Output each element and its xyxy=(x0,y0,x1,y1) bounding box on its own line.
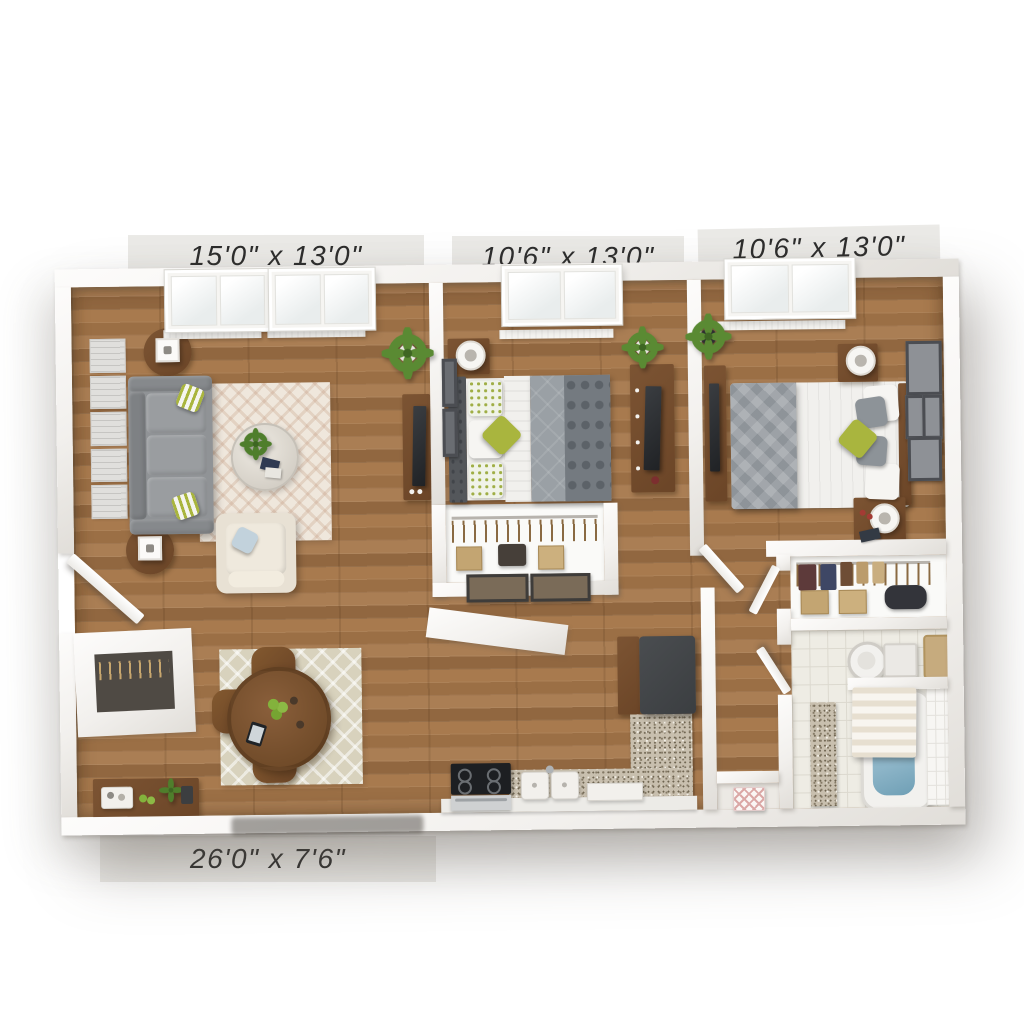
bedroom-one-wall-frame xyxy=(442,409,458,457)
hall-closet-wall-top xyxy=(717,771,779,784)
floor-plan-page: 15'0" x 13'0" 10'6" x 13'0" 10'6" x 13'0… xyxy=(0,0,1024,1024)
hanging-shirt-tan xyxy=(856,562,868,584)
outer-wall-left-upper xyxy=(55,287,74,553)
table-coaster xyxy=(296,721,304,729)
kitchen-dining-dimension-text: 26'0" x 7'6" xyxy=(190,843,346,875)
lamp-inner xyxy=(146,545,153,552)
range-cooktop xyxy=(451,763,511,795)
apartment-floor-plan xyxy=(36,244,983,845)
hall-framed-art-1 xyxy=(466,574,528,603)
floral-pillow xyxy=(469,462,503,498)
lamp-inner xyxy=(164,347,171,354)
closet-one-hangers xyxy=(452,519,598,543)
console-apples xyxy=(139,794,147,802)
hanging-shirt-tan xyxy=(872,561,884,583)
sofa-arm-bottom xyxy=(130,519,214,535)
toilet-tank xyxy=(883,643,917,677)
duffel-bag xyxy=(885,585,927,610)
hanging-shirt-navy xyxy=(820,564,836,590)
lamp-inner xyxy=(465,350,477,362)
bedroom-two-plant xyxy=(685,313,732,360)
lamp-inner xyxy=(855,355,867,367)
hanging-shirt-brown xyxy=(840,562,852,586)
serving-tray xyxy=(101,787,133,809)
living-room-window-1 xyxy=(165,269,272,332)
bathroom-tile-wall xyxy=(926,687,949,805)
bedroom-two-tv xyxy=(709,383,720,471)
living-tv xyxy=(412,406,426,486)
coffee-table-plant xyxy=(239,427,273,461)
console-plant xyxy=(159,778,183,802)
hall-framed-art-2 xyxy=(530,573,590,602)
window-pane xyxy=(275,274,321,325)
wall-closet-bathroom-divider xyxy=(791,617,947,631)
gallery-frame-3 xyxy=(922,395,943,439)
bathroom-counter xyxy=(810,702,837,806)
bedroom-one-window xyxy=(502,265,623,326)
window-pane xyxy=(731,265,789,314)
toilet-seat xyxy=(857,652,875,670)
tablet-screen xyxy=(248,725,264,744)
burner xyxy=(487,780,501,794)
bedroom-one-plant xyxy=(621,326,664,369)
sofa-backrest xyxy=(128,391,147,519)
window-pane xyxy=(171,276,217,327)
red-candles xyxy=(860,510,866,516)
drain xyxy=(532,783,537,788)
entry-closet-interior xyxy=(94,651,175,713)
doormat xyxy=(231,815,423,835)
oven-front xyxy=(451,795,511,811)
hall-wall-left xyxy=(701,588,718,810)
fruit-bowl xyxy=(268,699,279,710)
closet-one-shoes xyxy=(498,544,526,566)
linen-closet-box xyxy=(839,590,867,614)
armchair xyxy=(216,513,297,594)
kitchen-counter-right xyxy=(630,714,693,771)
hanging-shirt-darkred xyxy=(798,564,816,590)
entry-closet-hangers xyxy=(99,659,170,680)
sink-faucet xyxy=(546,765,554,773)
art-panel xyxy=(91,448,127,482)
wall-art-panels xyxy=(89,339,127,519)
drain xyxy=(562,782,567,787)
art-panel xyxy=(90,412,126,446)
art-panel xyxy=(89,339,125,373)
dishwasher xyxy=(587,782,643,801)
tray-bottle xyxy=(118,794,125,801)
table-coaster xyxy=(290,697,298,705)
bedroom-one-tv xyxy=(644,386,662,470)
linen-closet-box xyxy=(801,590,829,614)
console-decor-dot xyxy=(409,489,414,494)
bed-two-blanket xyxy=(730,382,798,509)
refrigerator xyxy=(639,636,696,715)
floral-pillow xyxy=(468,380,502,416)
sofa-cushion xyxy=(147,435,207,476)
dresser-knobs xyxy=(635,388,639,392)
bedroom-one-heater xyxy=(499,329,613,339)
bedroom-two-window xyxy=(725,258,856,320)
armchair-front-cushion xyxy=(228,571,284,588)
window-pane xyxy=(323,274,369,325)
window-pane xyxy=(791,264,849,313)
oven-handle xyxy=(455,798,507,802)
lamp-inner xyxy=(879,513,891,525)
window-pane xyxy=(508,271,561,320)
wall-bedroom-two-bottom xyxy=(766,539,946,557)
fridge-cabinet-panel xyxy=(617,636,640,714)
living-room-window-2 xyxy=(269,268,376,331)
bedroom-one-wall-frame xyxy=(442,359,458,407)
living-room-plant xyxy=(381,327,434,380)
closet-one-box xyxy=(538,545,564,569)
red-vase xyxy=(651,476,659,484)
bedroom-two-heater xyxy=(717,320,845,331)
cube-lamp-top xyxy=(155,338,179,362)
armchair-seat xyxy=(226,523,287,576)
bed-two-white-pillow xyxy=(865,463,900,500)
basket-lamp xyxy=(455,340,485,370)
hall-wall-right-b xyxy=(777,609,791,645)
kitchen-sink-left xyxy=(521,772,549,800)
patterned-storage-box xyxy=(733,787,765,811)
gallery-frame-4 xyxy=(908,437,943,481)
closet-one-box xyxy=(456,546,482,570)
window-pane xyxy=(563,271,616,320)
cube-lamp-bottom xyxy=(138,536,162,560)
console-decor xyxy=(181,786,193,804)
burner xyxy=(458,780,472,794)
gallery-frame-1 xyxy=(906,341,943,395)
kitchen-sink-right xyxy=(551,771,579,799)
art-panel xyxy=(91,485,127,519)
art-panel xyxy=(90,375,126,409)
shower-curtain xyxy=(852,687,916,757)
bed-one-patterned-throw xyxy=(564,375,612,502)
hall-wall-right-c xyxy=(778,695,793,809)
tray-bottle xyxy=(107,792,114,799)
window-pane xyxy=(219,275,265,326)
console-decor-dot xyxy=(417,489,422,494)
coffee-table-book xyxy=(265,467,282,478)
